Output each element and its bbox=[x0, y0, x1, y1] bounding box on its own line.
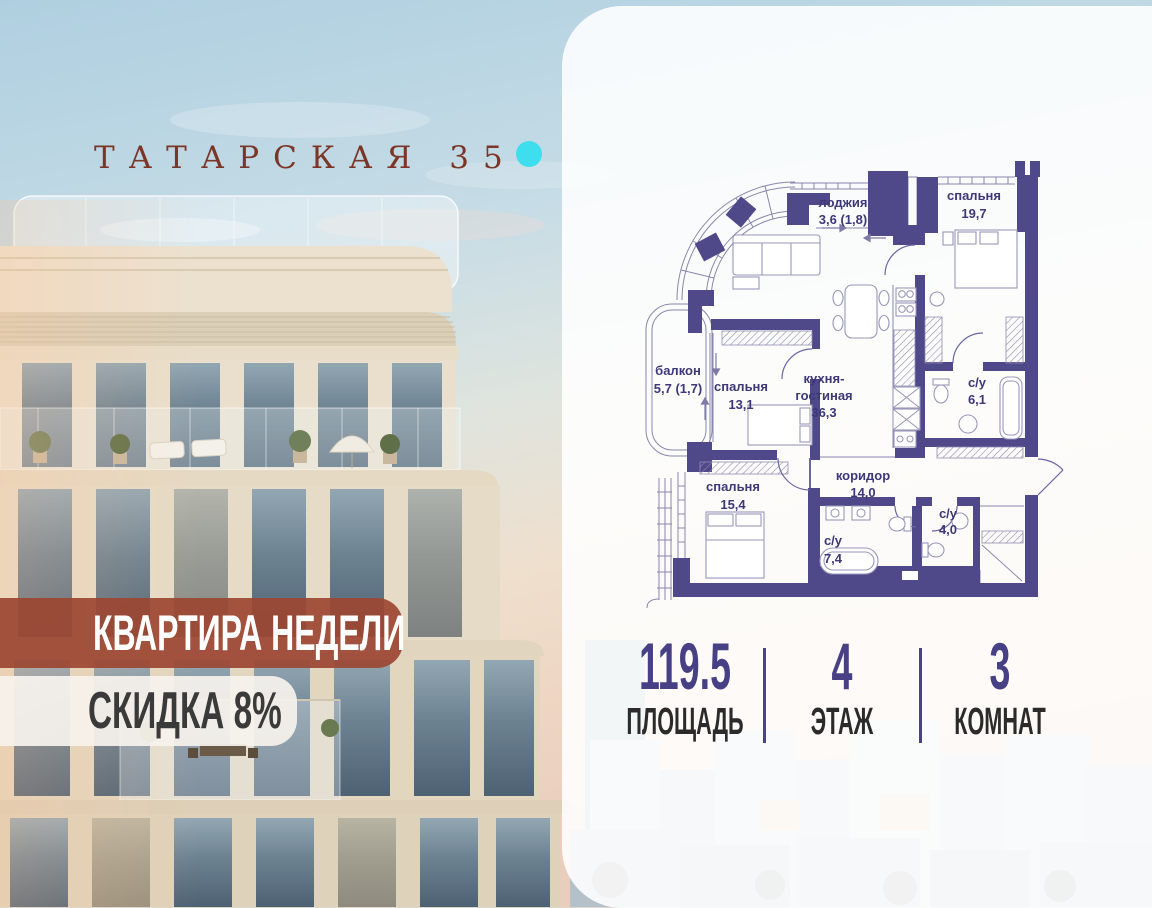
room-label-bedroom-bottom: спальня bbox=[706, 479, 760, 494]
stat-floor-label: ЭТАЖ bbox=[811, 706, 873, 738]
stat-floor-value: 4 bbox=[811, 640, 873, 692]
room-label-corridor: коридор bbox=[836, 468, 890, 483]
room-label-bedroom-mid: спальня bbox=[714, 379, 768, 394]
badge-discount-label: СКИДКА 8% bbox=[88, 681, 282, 741]
room-area-corridor: 14,0 bbox=[850, 485, 875, 500]
room-label-balcony: балкон bbox=[655, 363, 701, 378]
stat-area-value: 119.5 bbox=[626, 640, 743, 692]
room-label-loggia: лоджия bbox=[819, 195, 868, 210]
room-label-bath-ensuite: с/у bbox=[968, 375, 987, 390]
room-label-bedroom-top: спальня bbox=[947, 188, 1001, 203]
room-label-kitchen-2: гостиная bbox=[795, 388, 852, 403]
stat-divider bbox=[763, 648, 766, 743]
stat-area-label: ПЛОЩАДЬ bbox=[626, 706, 743, 738]
stat-floor: 4 ЭТАЖ bbox=[787, 640, 897, 738]
stat-rooms: 3 КОМНАТ bbox=[920, 640, 1081, 738]
stat-area: 119.5 ПЛОЩАДЬ bbox=[582, 640, 788, 738]
room-area-bedroom-top: 19,7 bbox=[961, 206, 986, 221]
room-area-bath-guest: 4,0 bbox=[939, 522, 957, 537]
badge-discount: СКИДКА 8% bbox=[0, 676, 297, 746]
room-label-kitchen-1: кухня- bbox=[804, 371, 845, 386]
room-label-bath-main: с/у bbox=[824, 533, 843, 548]
vent-shaft bbox=[902, 571, 918, 580]
brand-logo: ТАТАРСКАЯ 35 bbox=[94, 140, 564, 186]
room-area-loggia: 3,6 (1,8) bbox=[819, 212, 867, 227]
room-area-bedroom-bottom: 15,4 bbox=[720, 497, 746, 512]
room-area-balcony: 5,7 (1,7) bbox=[654, 381, 702, 396]
brand-dot-icon bbox=[516, 141, 542, 167]
room-area-bath-ensuite: 6,1 bbox=[968, 392, 986, 407]
room-area-bath-main: 7,4 bbox=[824, 551, 843, 566]
badge-apartment-of-week-label: КВАРТИРА НЕДЕЛИ bbox=[93, 604, 405, 662]
stat-rooms-label: КОМНАТ bbox=[954, 706, 1046, 738]
stat-rooms-value: 3 bbox=[954, 640, 1046, 692]
badge-apartment-of-week: КВАРТИРА НЕДЕЛИ bbox=[0, 598, 403, 668]
room-label-bath-guest: с/у bbox=[939, 506, 958, 521]
room-area-kitchen: 36,3 bbox=[811, 405, 836, 420]
floor-plan: лоджия 3,6 (1,8) спальня 19,7 балкон 5,7… bbox=[638, 148, 1072, 612]
room-area-bedroom-mid: 13,1 bbox=[728, 397, 753, 412]
